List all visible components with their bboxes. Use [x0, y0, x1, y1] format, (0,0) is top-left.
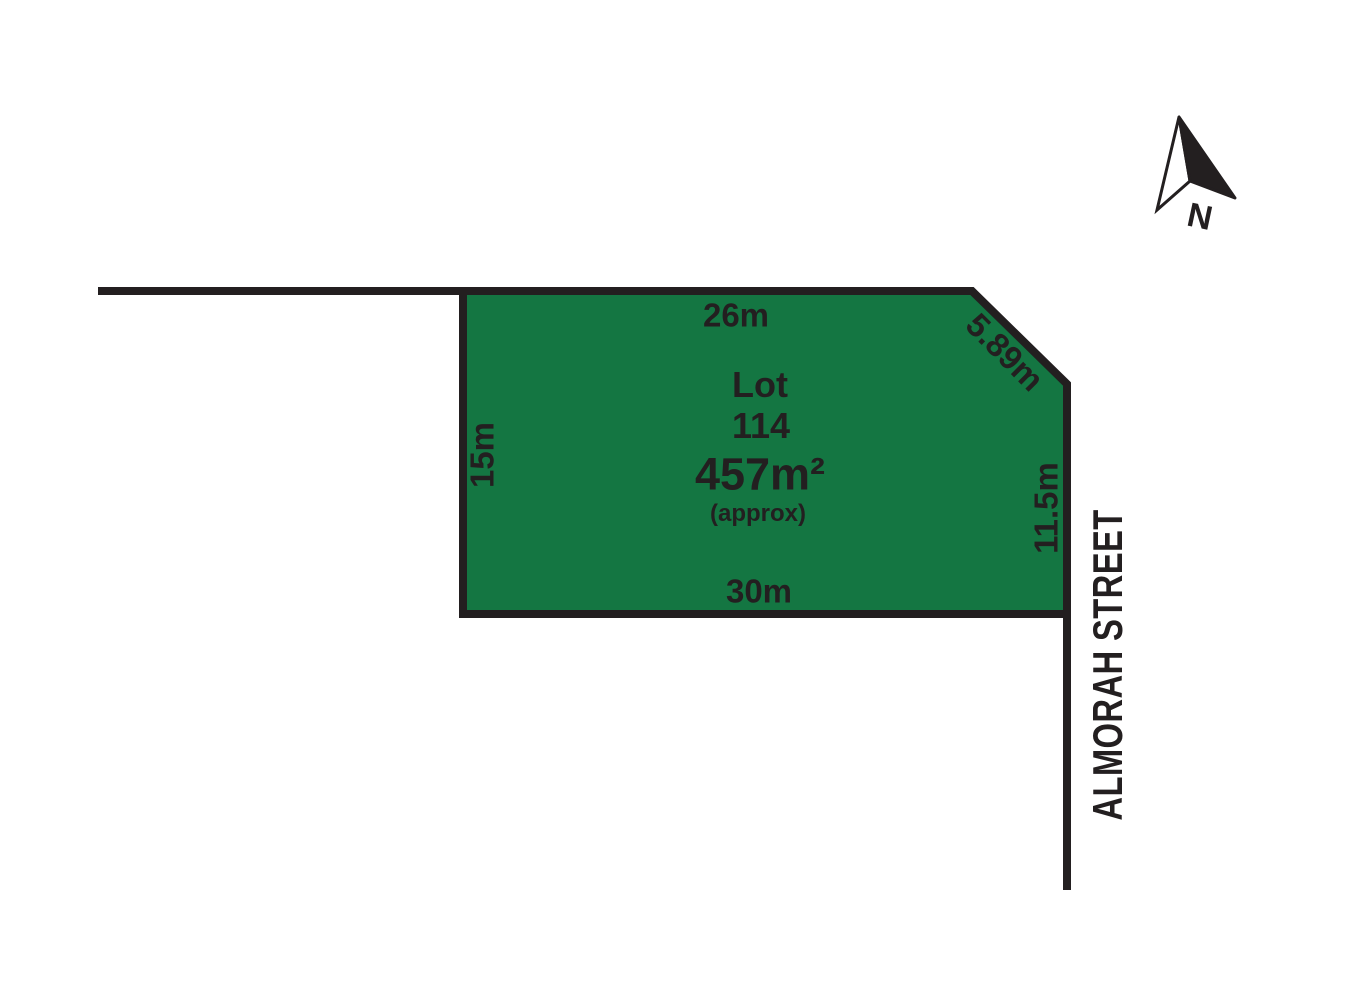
lot-number: 114 [732, 408, 790, 444]
lot-label: Lot [732, 367, 788, 403]
dimension-top: 26m [703, 299, 769, 332]
lot-area-qualifier: (approx) [710, 502, 806, 526]
dimension-left: 15m [466, 422, 499, 488]
north-arrow: N [1157, 117, 1235, 238]
site-plan-drawing: N [0, 0, 1358, 987]
dimension-bottom: 30m [726, 575, 792, 608]
street-name: ALMORAH STREET [1087, 509, 1129, 820]
dimension-right: 11.5m [1030, 462, 1063, 554]
lot-area: 457m² [695, 452, 825, 497]
north-arrow-filled-half [1179, 117, 1235, 198]
site-plan: N 26m 5.89m 15m 11.5m 30m Lot 114 457m² … [0, 0, 1358, 987]
north-label: N [1184, 196, 1216, 238]
